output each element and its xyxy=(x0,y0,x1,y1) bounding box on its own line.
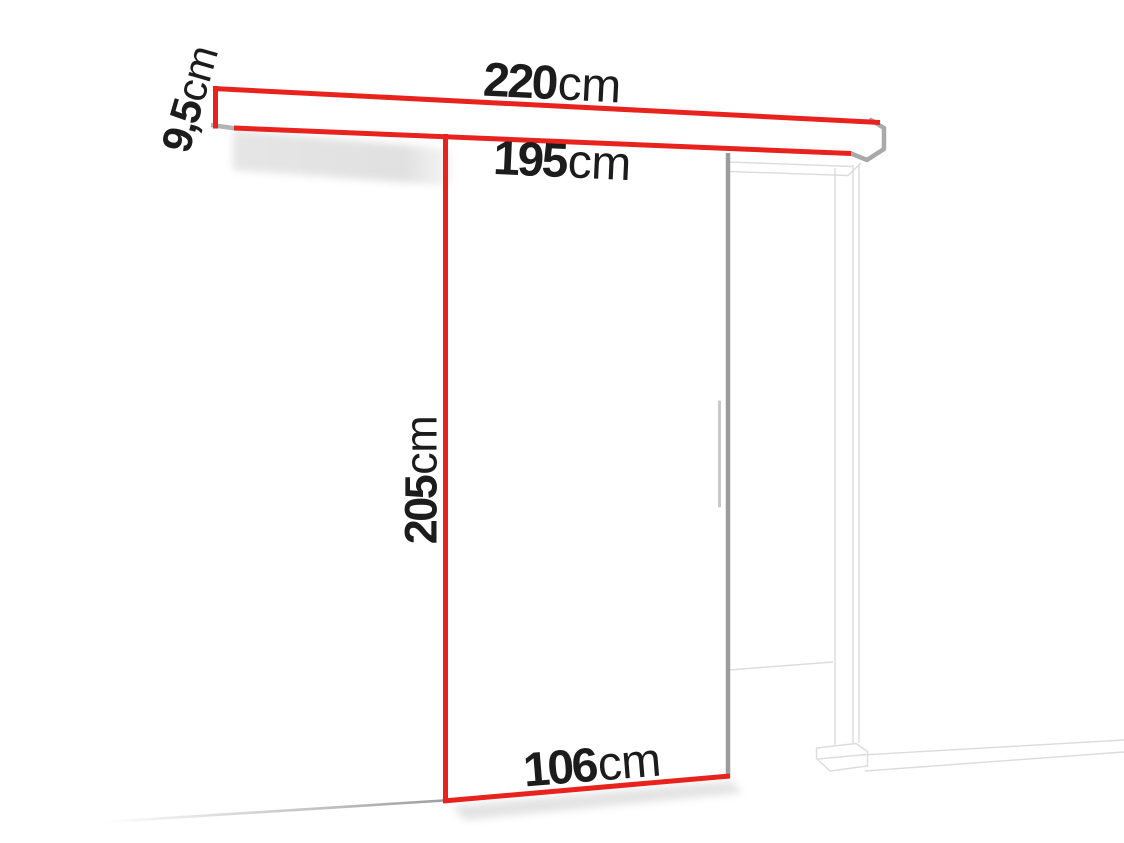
rail-shadow xyxy=(233,130,452,186)
frame-lintel-bottom-line xyxy=(729,172,848,176)
dimension-value: 106 xyxy=(521,739,598,798)
dimension-unit: cm xyxy=(556,57,622,113)
dimension-label-rail-track-length: 195cm xyxy=(492,135,632,189)
frame-lintel-top-line xyxy=(729,162,852,167)
dimension-value: 220 xyxy=(482,54,557,111)
dimension-label-rail-total-length: 220cm xyxy=(482,57,622,112)
dimension-unit: cm xyxy=(396,416,447,475)
dimension-label-door-height: 205cm xyxy=(399,416,444,545)
skirting-top-line xyxy=(862,740,1124,755)
frame-plinth-edge-line xyxy=(818,755,866,760)
frame-inner-floor-line xyxy=(729,662,833,670)
sliding-door-panel xyxy=(443,134,730,803)
rail-right-end-cap xyxy=(851,120,884,160)
floor-line-left xyxy=(104,801,444,823)
dimension-unit: cm xyxy=(567,135,632,191)
dimension-value: 195 xyxy=(492,132,567,188)
dimension-unit: cm xyxy=(596,734,663,792)
dimension-label-door-width: 106cm xyxy=(522,737,663,796)
skirting-bottom-line xyxy=(865,752,1124,771)
diagram-canvas: 220cm 195cm 9,5cm 205cm 106cm xyxy=(0,0,1124,843)
dimension-value: 205 xyxy=(396,477,447,545)
door-frame xyxy=(729,162,1124,771)
